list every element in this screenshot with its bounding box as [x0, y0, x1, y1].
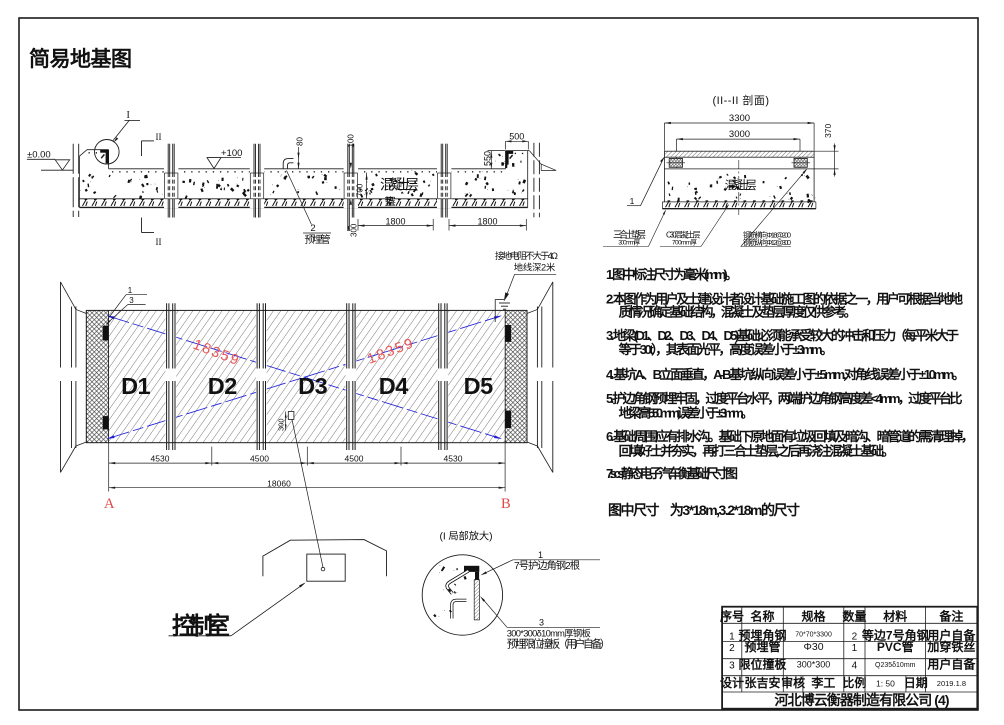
svg-text:审核: 审核: [781, 675, 805, 690]
svg-text:规格: 规格: [802, 608, 827, 623]
svg-text:Q235δ10mm: Q235δ10mm: [875, 662, 916, 669]
svg-text:PVC管: PVC管: [877, 639, 914, 654]
svg-text:1: 1: [630, 196, 635, 206]
svg-text:18060: 18060: [267, 478, 291, 488]
svg-text:设计: 设计: [720, 675, 744, 690]
svg-text:300: 300: [277, 418, 286, 431]
svg-text:2: 2: [852, 632, 858, 643]
svg-text:垫层: 垫层: [385, 195, 397, 208]
svg-text:预埋限位撞板（用户自备）: 预埋限位撞板（用户自备）: [507, 637, 611, 651]
svg-text:4530: 4530: [151, 454, 170, 464]
svg-text:质情况确定基础结构，混凝土及垫层厚度仅供参考。: 质情况确定基础结构，混凝土及垫层厚度仅供参考。: [619, 305, 857, 320]
svg-text:李工: 李工: [810, 675, 835, 690]
svg-text:700: 700: [356, 183, 365, 197]
svg-text:1: 1: [729, 632, 735, 643]
svg-text:2: 2: [310, 223, 315, 234]
svg-text:2019.1.8: 2019.1.8: [937, 679, 966, 688]
svg-text:限位撞板: 限位撞板: [739, 656, 788, 671]
svg-text:370: 370: [823, 124, 833, 138]
svg-text:4500: 4500: [345, 454, 364, 464]
svg-text:I: I: [127, 110, 130, 121]
svg-text:备注: 备注: [938, 608, 963, 623]
svg-text:7号护边角钢2根: 7号护边角钢2根: [514, 559, 580, 572]
svg-text:D4: D4: [379, 373, 408, 399]
svg-text:1800: 1800: [385, 217, 405, 227]
svg-text:3: 3: [129, 296, 134, 305]
svg-text:7. scs静态电子汽车衡基础尺寸图: 7. scs静态电子汽车衡基础尺寸图: [606, 466, 738, 481]
svg-text:3. 地梁(D1、D2、D3、D4、D5)基础必须能承受较大: 3. 地梁(D1、D2、D3、D4、D5)基础必须能承受较大的冲击和压力（每平米…: [606, 328, 959, 343]
svg-text:4530: 4530: [444, 454, 463, 464]
svg-text:日期: 日期: [904, 675, 928, 690]
svg-text:简易地基图: 简易地基图: [29, 47, 132, 71]
svg-text:张吉安: 张吉安: [745, 675, 781, 690]
svg-text:550: 550: [482, 151, 492, 166]
svg-text:Φ30: Φ30: [804, 641, 824, 653]
svg-text:D2: D2: [208, 373, 237, 399]
svg-text:3300: 3300: [729, 113, 750, 124]
svg-text:5. 护边角钢预埋牢固，过度平台水平，两端护边角钢高度差<4: 5. 护边角钢预埋牢固，过度平台水平，两端护边角钢高度差<4mm，过度平台比: [606, 391, 963, 406]
svg-text:4. 基坑A、B立面垂直，A-B基坑纵向误差小于±5mm,对: 4. 基坑A、B立面垂直，A-B基坑纵向误差小于±5mm,对角线误差小于±10m…: [606, 367, 965, 382]
svg-text:钢筋纵向Φ12@300: 钢筋纵向Φ12@300: [743, 237, 791, 247]
svg-text:B: B: [501, 496, 511, 512]
svg-text:70*70*3300: 70*70*3300: [795, 632, 832, 639]
svg-text:用户自备: 用户自备: [926, 656, 976, 671]
svg-text:1. 图中标注尺寸为毫米(mm)。: 1. 图中标注尺寸为毫米(mm)。: [606, 267, 738, 282]
svg-text:(I 局部放大): (I 局部放大): [440, 530, 493, 543]
svg-text:名称: 名称: [751, 608, 775, 623]
svg-text:C30混凝土层: C30混凝土层: [666, 230, 701, 240]
svg-text:80: 80: [296, 137, 305, 146]
svg-text:700mm厚: 700mm厚: [672, 238, 698, 246]
svg-text:(II--II 剖面): (II--II 剖面): [713, 93, 770, 107]
svg-text:图中尺寸 为3*18m,3.2*18m的尺寸: 图中尺寸 为3*18m,3.2*18m的尺寸: [608, 502, 800, 518]
svg-text:2: 2: [729, 643, 735, 654]
svg-text:D5: D5: [464, 373, 493, 399]
svg-text:3: 3: [729, 660, 735, 671]
svg-text:300mm厚: 300mm厚: [618, 238, 641, 246]
svg-text:II: II: [156, 132, 162, 142]
svg-text:100: 100: [347, 134, 356, 148]
svg-text:预埋管: 预埋管: [305, 233, 331, 246]
svg-text:D3: D3: [298, 373, 327, 399]
svg-text:数量: 数量: [842, 608, 866, 623]
svg-text:300*300: 300*300: [797, 659, 831, 669]
svg-text:II: II: [156, 237, 162, 247]
svg-text:1: 1: [852, 643, 858, 654]
svg-text:±0.00: ±0.00: [27, 149, 51, 160]
svg-text:4500: 4500: [250, 454, 269, 464]
svg-text:300*300δ10mm厚钢板: 300*300δ10mm厚钢板: [507, 627, 591, 638]
svg-text:预埋管: 预埋管: [745, 639, 781, 654]
svg-text:地梁高550mm,误差小于±3mm。: 地梁高550mm,误差小于±3mm。: [619, 405, 754, 420]
svg-text:3: 3: [539, 618, 544, 628]
svg-text:回填好土并夯实，再打三合土垫层,之后再浇注混凝土基础。: 回填好土并夯实，再打三合土垫层,之后再浇注混凝土基础。: [619, 443, 895, 458]
svg-text:河北博云衡器制造有限公司 (4): 河北博云衡器制造有限公司 (4): [775, 692, 950, 708]
svg-text:接地电阻不大于4Ω: 接地电阻不大于4Ω: [495, 250, 558, 261]
svg-text:D1: D1: [121, 373, 150, 399]
svg-text:500: 500: [509, 132, 524, 142]
svg-text:混凝土层: 混凝土层: [380, 177, 419, 193]
svg-text:1: 50: 1: 50: [876, 679, 895, 689]
svg-text:1: 1: [538, 550, 543, 560]
svg-text:混凝土层: 混凝土层: [725, 178, 757, 192]
svg-text:材料: 材料: [882, 608, 907, 623]
svg-text:比例: 比例: [842, 675, 866, 690]
svg-text:1: 1: [128, 286, 133, 295]
svg-text:300: 300: [350, 223, 359, 237]
svg-text:地线深2米: 地线深2米: [514, 261, 556, 272]
svg-text:A: A: [104, 496, 115, 512]
svg-text:3000: 3000: [729, 129, 750, 140]
svg-text:6. 基础周围应有排水沟。基础下原地面有垃圾回填及暗沟、暗管: 6. 基础周围应有排水沟。基础下原地面有垃圾回填及暗沟、暗管道的需清理掉，: [606, 429, 974, 444]
svg-text:4: 4: [852, 660, 858, 671]
svg-text:等于30t），其表面光平，高度误差小于±3mm。: 等于30t），其表面光平，高度误差小于±3mm。: [618, 342, 834, 357]
svg-text:1800: 1800: [477, 217, 497, 227]
svg-text:序号: 序号: [720, 608, 744, 623]
svg-text:加穿铁丝: 加穿铁丝: [926, 639, 975, 654]
